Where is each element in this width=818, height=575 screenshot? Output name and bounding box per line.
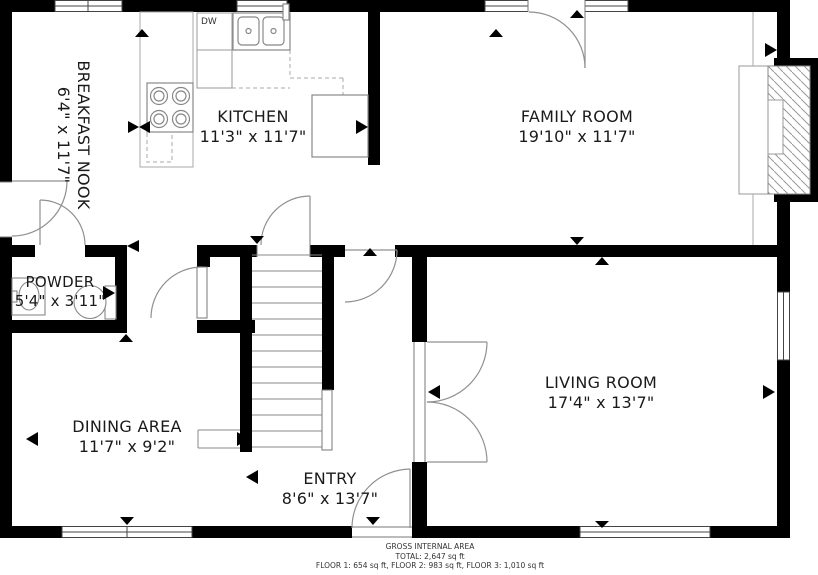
wall-segment [12, 245, 35, 257]
caption-floors: FLOOR 1: 654 sq ft, FLOOR 2: 983 sq ft, … [316, 561, 544, 571]
wall-segment [240, 245, 252, 452]
floor-plan-drawing: DW [0, 0, 818, 575]
faucet-icon [283, 4, 289, 20]
room-dims: 8'6" x 13'7" [282, 489, 378, 509]
wall-segment [777, 202, 790, 245]
wall-segment [777, 257, 790, 292]
front-door-frame [352, 526, 412, 538]
wall-segment [777, 0, 790, 58]
room-label-family-room: FAMILY ROOM 19'10" x 11'7" [518, 107, 635, 147]
marker-arrow-right [763, 385, 775, 399]
marker-arrow-down [120, 517, 134, 525]
fireplace [739, 12, 810, 245]
french-door-frame [412, 342, 427, 462]
wall-segment [412, 245, 427, 342]
powder-door-opening [35, 245, 85, 257]
chimney-wall [774, 194, 818, 202]
dw-label: DW [201, 17, 217, 27]
room-label-kitchen: KITCHEN 11'3" x 11'7" [200, 107, 307, 147]
wall-segment [0, 526, 62, 538]
room-dims: 11'3" x 11'7" [200, 127, 307, 147]
room-label-dining-area: DINING AREA 11'7" x 9'2" [72, 417, 182, 457]
wall-segment [197, 257, 210, 267]
marker-arrow-right [128, 121, 139, 133]
window [485, 1, 528, 12]
marker-arrow-left [26, 432, 38, 446]
stove-icon [147, 83, 193, 132]
room-dims: 11'7" x 9'2" [72, 437, 182, 457]
staircase [198, 255, 332, 450]
room-name: FAMILY ROOM [518, 107, 635, 127]
room-name: LIVING ROOM [545, 373, 657, 393]
window [580, 527, 710, 538]
back-door-swing [529, 12, 585, 68]
wall-segment [0, 0, 12, 182]
wall-segment [192, 526, 352, 538]
marker-arrow-up [489, 29, 503, 37]
room-dims: 19'10" x 11'7" [518, 127, 635, 147]
back-door-frame [528, 0, 585, 12]
stair-railing [322, 390, 332, 450]
window [237, 1, 287, 12]
room-label-living-room: LIVING ROOM 17'4" x 13'7" [545, 373, 657, 413]
room-name: BREAKFAST NOOK [73, 60, 93, 209]
window [55, 1, 122, 12]
wall-segment [0, 237, 12, 538]
firebox [768, 100, 783, 154]
wall-segment [628, 0, 788, 12]
wall-segment [412, 462, 427, 526]
marker-arrow-up [119, 334, 133, 342]
side-door-frame [0, 182, 12, 237]
stairwell-door-swing [261, 196, 310, 245]
walls [0, 0, 818, 538]
wall-segment [322, 245, 334, 390]
caption-total: TOTAL: 2,647 sq ft [316, 552, 544, 562]
marker-arrow-left [246, 470, 258, 484]
room-dims: 6'4" x 11'7" [53, 60, 73, 209]
marker-arrow-up [595, 257, 609, 265]
marker-arrow-down [250, 236, 264, 244]
closet-door-swing [151, 267, 202, 318]
floor-plan: DW [0, 0, 818, 575]
dishwasher-icon: DW [197, 13, 232, 88]
room-label-powder: POWDER 5'4" x 3'11" [15, 273, 106, 311]
wall-segment [777, 360, 790, 538]
french-door-swing [427, 342, 487, 462]
room-dims: 17'4" x 13'7" [545, 393, 657, 413]
marker-arrow-left [127, 240, 139, 252]
room-label-entry: ENTRY 8'6" x 13'7" [282, 469, 378, 509]
room-dims: 5'4" x 3'11" [15, 292, 106, 311]
marker-arrow-down [570, 237, 584, 245]
wall-segment [287, 0, 485, 12]
window [62, 527, 192, 538]
wall-segment [0, 320, 127, 333]
caption-title: GROSS INTERNAL AREA [316, 542, 544, 552]
marker-arrow-down [366, 517, 380, 525]
wall-segment [368, 0, 380, 165]
room-label-breakfast-nook: BREAKFAST NOOK 6'4" x 11'7" [53, 60, 93, 209]
wall-segment [395, 245, 790, 257]
closet-door-leaf [197, 267, 207, 318]
counter-dashed [147, 132, 172, 162]
marker-arrow-left [428, 385, 440, 399]
stair-landing [198, 430, 240, 448]
marker-arrow-up [135, 29, 149, 37]
gross-internal-area-caption: GROSS INTERNAL AREA TOTAL: 2,647 sq ft F… [316, 542, 544, 571]
wall-segment [412, 526, 580, 538]
wall-segment [122, 0, 237, 12]
room-name: ENTRY [282, 469, 378, 489]
room-name: KITCHEN [200, 107, 307, 127]
room-name: DINING AREA [72, 417, 182, 437]
wall-segment [115, 245, 127, 333]
marker-arrow-left [139, 121, 150, 133]
chimney-wall [810, 58, 818, 202]
marker-arrow-right [765, 43, 777, 57]
room-name: POWDER [15, 273, 106, 292]
hall-door-swing [345, 250, 397, 302]
window [778, 292, 790, 360]
hearth [739, 66, 768, 194]
window [585, 1, 628, 12]
